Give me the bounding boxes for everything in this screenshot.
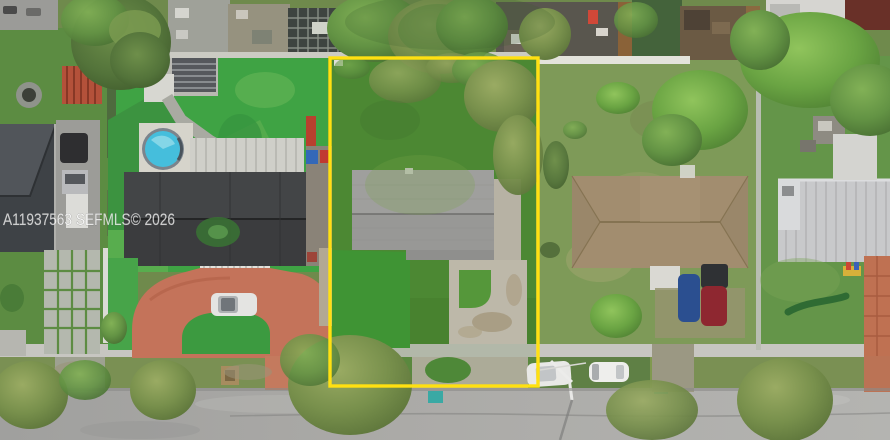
svg-text:A11937563 SEFMLS© 2026: A11937563 SEFMLS© 2026 <box>3 210 175 229</box>
